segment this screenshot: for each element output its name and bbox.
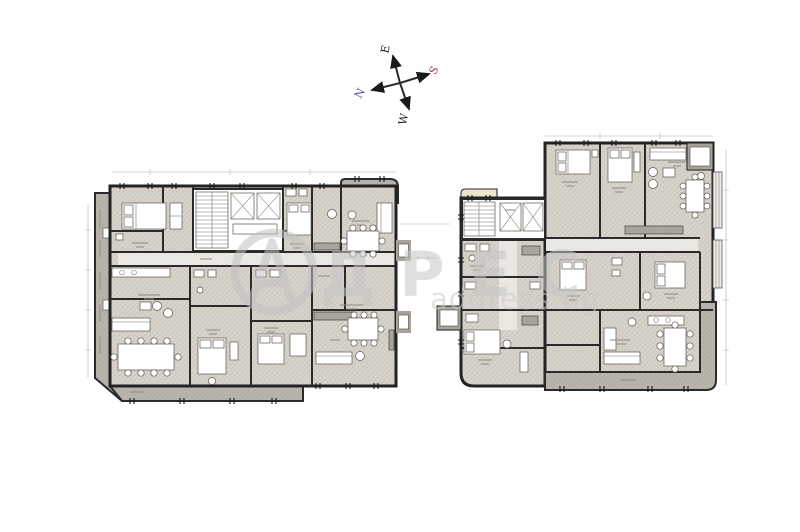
sofa <box>650 148 686 160</box>
armchair <box>164 309 173 318</box>
sofa <box>604 352 640 364</box>
balcony-door <box>103 300 109 310</box>
compass-axis-north <box>372 83 400 90</box>
dresser <box>230 342 238 360</box>
dresser <box>520 352 528 372</box>
plant <box>698 173 705 180</box>
dining-table <box>118 344 174 370</box>
floor-plan-canvas: E W N S ДРЕС address.bg <box>0 0 800 532</box>
balcony-door <box>103 228 109 238</box>
coffee-table <box>140 302 151 310</box>
compass-axis-south <box>400 74 429 83</box>
dresser <box>634 152 640 172</box>
armchair <box>328 210 337 219</box>
closet <box>522 316 538 325</box>
sofa <box>112 318 150 331</box>
kitchen-counter <box>625 226 683 234</box>
armchair <box>628 318 636 326</box>
compass-axis-east <box>393 56 400 83</box>
coffee-table <box>663 168 675 177</box>
armchair <box>643 292 651 300</box>
rug <box>503 340 511 348</box>
staircase <box>464 202 495 236</box>
bed <box>290 334 306 356</box>
compass-east-label: E <box>378 44 392 55</box>
dining-table <box>664 328 686 366</box>
top-right-balcony <box>687 143 713 170</box>
armchair <box>649 168 658 177</box>
kitchen-counter <box>112 268 170 277</box>
rug <box>208 377 215 384</box>
compass-west-label: W <box>396 112 411 126</box>
dining-table <box>686 180 704 212</box>
compass-axis-west <box>400 83 409 109</box>
sofa <box>316 352 352 364</box>
sofa-chaise <box>604 328 616 350</box>
armchair <box>649 180 658 189</box>
tv-unit <box>389 330 394 350</box>
stair-core <box>462 199 545 239</box>
watermark-domain-text: address.bg <box>430 282 600 316</box>
floor-plan-drawing: E W N S ДРЕС address.bg <box>0 0 800 532</box>
compass-rose-icon: E W N S <box>352 44 442 126</box>
sofa <box>377 203 392 233</box>
side-table <box>348 211 356 219</box>
armchair <box>356 352 365 361</box>
dining-table <box>348 318 378 340</box>
armchair <box>153 302 162 311</box>
compass-north-label: N <box>352 86 368 101</box>
bottom-terrace-hatch <box>110 386 303 401</box>
